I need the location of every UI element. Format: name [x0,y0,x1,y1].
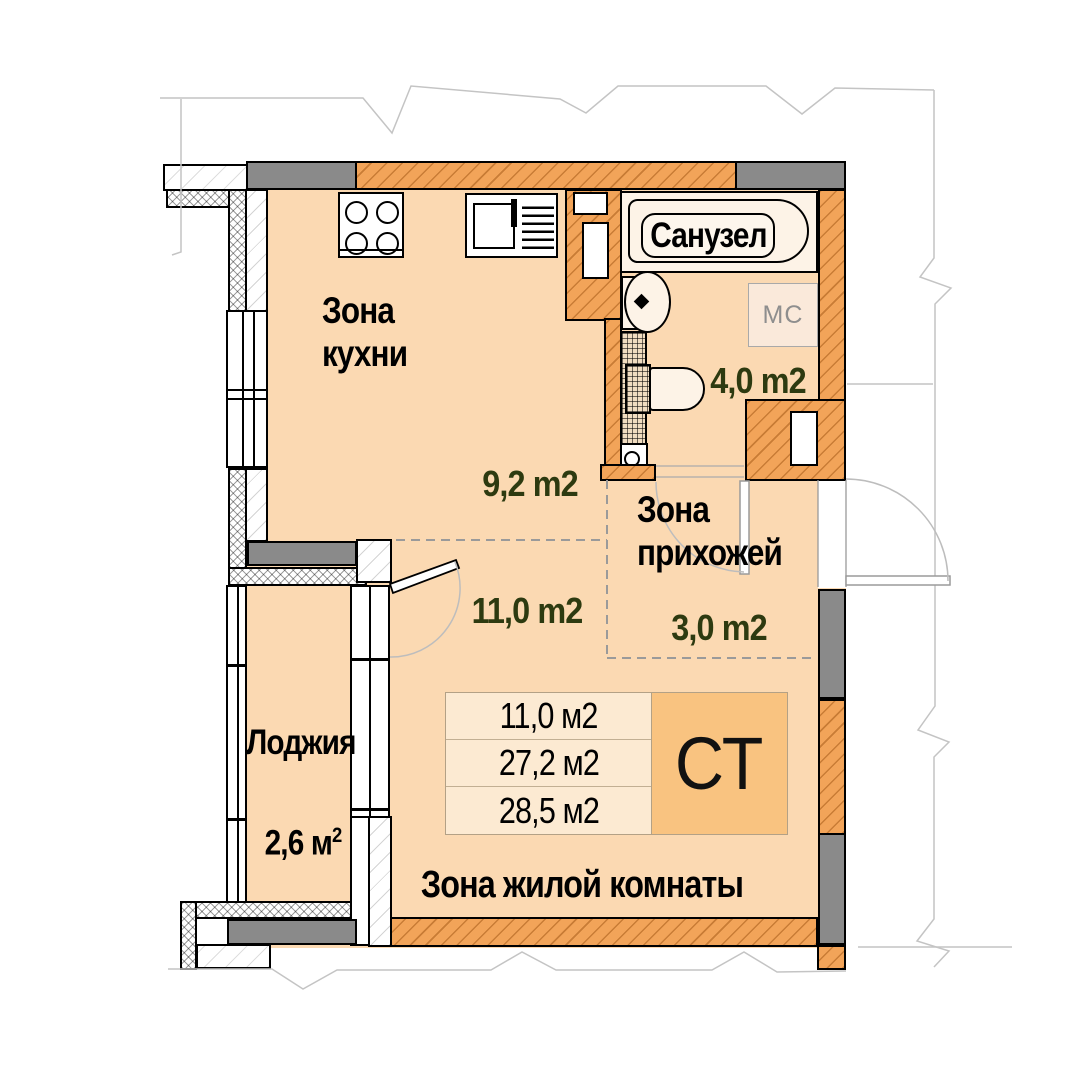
vent-shaft-a [573,192,608,215]
wall-bathroom-south-left [600,464,656,481]
row-area-value: 27,2 м2 [498,742,598,784]
row-area-value: 28,5 м2 [498,790,598,832]
wall-niche [790,411,818,466]
wall-top-orange [355,161,738,190]
exterior-ledge-bottom [196,944,271,969]
pier-balcony-corner [356,539,392,583]
entrance-door-arc [846,479,948,581]
wall-bathroom-east [818,189,846,404]
wall-east-orange [818,699,846,835]
living-zone-label: Зона жилой комнаты [421,864,743,907]
stove-burner [376,201,399,224]
loggia-label: Лоджия [246,721,355,764]
loggia-area-sup: 2 [332,822,341,847]
bathroom-label: Санузел [650,216,766,256]
wall-bathroom-west [604,318,622,468]
pier-loggia-east-lower [368,816,392,947]
wall-east-gray-1 [818,589,846,699]
vent-shaft-b [582,222,609,279]
washing-machine-label: МС [763,301,804,330]
room-area-label: 11,0 m2 [472,590,583,632]
washing-machine: МС [748,283,818,347]
entrance-opening [818,480,847,588]
hall-zone-label: Зона прихожей [637,488,782,574]
table-row: 28,5 м2 [446,787,651,834]
kitchen-window [226,310,268,468]
toilet-tank [625,364,651,414]
wall-loggia-top-hatch [228,567,367,586]
wall-loggia-top-gray [247,541,357,566]
wall-east-foot [817,945,846,970]
wall-loggia-bottom-left [180,901,197,970]
floor-plan: Санузел МС 11,0 м2 27,2 м2 28,5 м2 СТ [0,0,1080,1080]
pier-west-lower [245,468,268,542]
balcony-window [350,585,390,818]
hall-zone-line2: прихожей [637,531,782,574]
entrance-door-leaf [846,576,950,585]
type-code: СТ [675,721,763,806]
wall-loggia-bottom-gray [227,919,357,945]
table-row: 11,0 м2 [446,693,651,740]
exterior-ledge-top [163,164,248,191]
bathroom-area-label: 4,0 m2 [710,360,805,402]
wall-east-gray-2 [818,833,846,945]
sink-faucet [511,199,517,227]
pier-west-upper [245,189,268,312]
kitchen-area-label: 9,2 m2 [482,463,577,505]
kitchen-zone-line1: Зона [322,289,407,332]
loggia-area-value: 2,6 м [265,824,332,863]
loggia-window-west [226,585,247,903]
sink-basin [473,203,515,249]
hall-zone-line1: Зона [637,488,782,531]
stove-burner [376,232,399,255]
toilet-bowl [649,367,705,411]
bathroom-label-box: Санузел [641,213,775,258]
wall-top-gray-right [735,161,846,190]
kitchen-zone-label: Зона кухни [322,289,407,375]
stove [338,192,404,258]
wall-loggia-bottom-hatch [188,901,352,919]
wall-top-gray-left [246,161,358,190]
wall-south [390,917,818,947]
break-line-top [160,86,934,133]
loggia-area-label: 2,6 м2 [265,813,342,865]
stove-burner [345,201,368,224]
summary-table: 11,0 м2 27,2 м2 28,5 м2 СТ [445,692,788,835]
table-row: 27,2 м2 [446,740,651,787]
type-cell: СТ [651,693,787,834]
summary-rows: 11,0 м2 27,2 м2 28,5 м2 [446,693,651,834]
kitchen-sink [465,193,558,258]
kitchen-zone-line2: кухни [322,332,407,375]
row-area-value: 11,0 м2 [500,695,598,737]
hall-area-label: 3,0 m2 [671,607,766,649]
sink-drainer [522,205,554,249]
stove-burner [345,232,368,255]
break-line-right [917,90,951,967]
